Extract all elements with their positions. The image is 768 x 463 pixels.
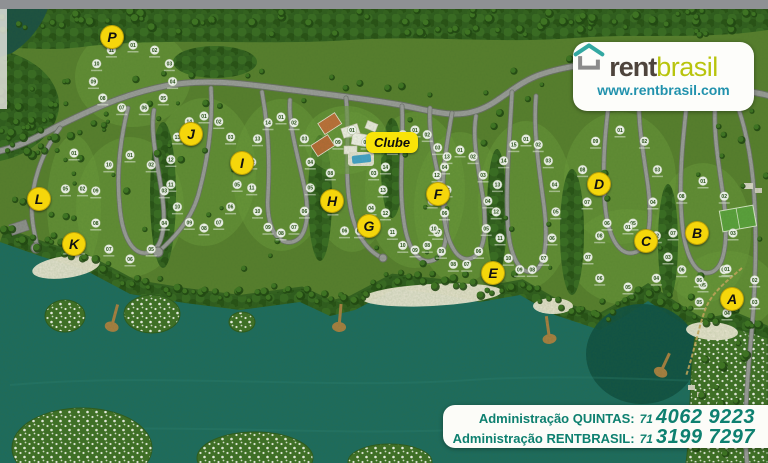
section-letter: E — [488, 266, 497, 280]
section-marker-h: H — [320, 189, 344, 213]
brand-row: rentbrasil — [609, 54, 718, 81]
section-letter: B — [692, 226, 702, 240]
logo-card: rentbrasil www.rentbrasil.com — [573, 42, 754, 111]
brand-name-rent: rent — [609, 54, 656, 81]
section-marker-d: D — [587, 172, 611, 196]
window-chrome-strip — [0, 0, 768, 9]
section-letter: P — [107, 30, 116, 44]
section-marker-e: E — [481, 261, 505, 285]
admin-quintas-label: Administração QUINTAS: — [479, 412, 635, 425]
admin-quintas-area-code: 71 — [640, 413, 653, 425]
admin-rentbrasil-label: Administração RENTBRASIL: — [453, 432, 635, 445]
section-marker-a: A — [720, 287, 744, 311]
admin-rentbrasil-phone: 3199 7297 — [656, 427, 755, 447]
website-url[interactable]: www.rentbrasil.com — [597, 82, 730, 99]
section-marker-g: G — [357, 214, 381, 238]
section-marker-j: J — [179, 122, 203, 146]
section-marker-f: F — [426, 182, 450, 206]
admin-quintas-phone: 4062 9223 — [656, 407, 755, 427]
section-letter: L — [35, 192, 44, 206]
section-letter: D — [594, 177, 604, 191]
section-letter: H — [327, 194, 337, 208]
section-marker-b: B — [685, 221, 709, 245]
section-marker-i: I — [230, 151, 254, 175]
admin-line-quintas: Administração QUINTAS: 71 4062 9223 — [479, 407, 755, 427]
admin-rentbrasil-area-code: 71 — [640, 433, 653, 445]
admin-line-rentbrasil: Administração RENTBRASIL: 71 3199 7297 — [453, 427, 755, 447]
section-letter: I — [240, 156, 244, 170]
section-letter: C — [641, 234, 651, 248]
section-letter: A — [727, 292, 737, 306]
clube-label-text: Clube — [374, 135, 410, 150]
section-marker-c: C — [634, 229, 658, 253]
section-marker-p: P — [100, 25, 124, 49]
section-marker-k: K — [62, 232, 86, 256]
resort-site-map: 0102030405060708091011010203040506070809… — [0, 0, 768, 463]
section-letter: J — [187, 127, 195, 141]
section-letter: F — [434, 187, 443, 201]
contact-card: Administração QUINTAS: 71 4062 9223 Admi… — [443, 405, 768, 448]
section-letter: G — [364, 219, 375, 233]
house-icon — [573, 42, 605, 72]
section-letter: K — [69, 237, 79, 251]
section-marker-l: L — [27, 187, 51, 211]
brand-name-brasil: brasil — [656, 54, 718, 81]
clube-label: Clube — [366, 132, 418, 153]
